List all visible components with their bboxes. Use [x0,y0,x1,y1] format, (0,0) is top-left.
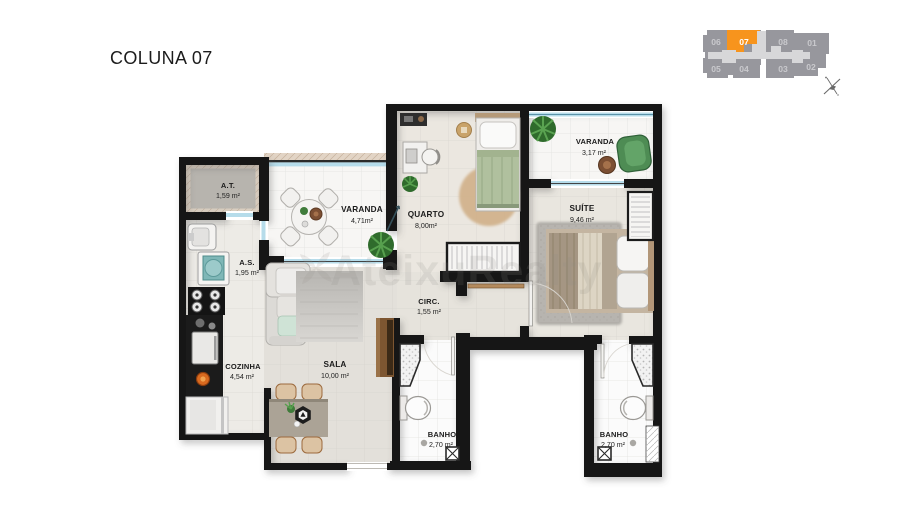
svg-text:BANHO: BANHO [428,430,457,439]
svg-text:A.S.: A.S. [239,258,254,267]
svg-text:05: 05 [711,64,721,74]
svg-text:COLUNA 07: COLUNA 07 [110,48,213,68]
svg-text:10,00 m²: 10,00 m² [321,372,350,380]
svg-text:1,59 m²: 1,59 m² [216,192,241,200]
svg-text:01: 01 [807,38,817,48]
svg-text:8,00m²: 8,00m² [415,222,438,230]
svg-text:2,70 m²: 2,70 m² [429,441,454,449]
svg-text:SUÍTE: SUÍTE [569,203,594,213]
svg-text:VARANDA: VARANDA [576,137,615,146]
svg-text:4,71m²: 4,71m² [351,217,374,225]
svg-text:CIRC.: CIRC. [418,297,439,306]
svg-text:2,70 m²: 2,70 m² [601,441,626,449]
svg-text:1,55 m²: 1,55 m² [417,308,442,316]
svg-text:03: 03 [778,64,788,74]
svg-text:QUARTO: QUARTO [408,210,445,219]
svg-text:4,54 m²: 4,54 m² [230,373,255,381]
svg-text:1,95 m²: 1,95 m² [235,269,260,277]
svg-text:A.T.: A.T. [221,181,235,190]
svg-text:AteixuRealty: AteixuRealty [330,247,603,295]
svg-text:06: 06 [711,37,721,47]
svg-text:08: 08 [778,37,788,47]
svg-text:07: 07 [739,37,749,47]
svg-text:SALA: SALA [323,360,346,369]
svg-text:COZINHA: COZINHA [225,362,261,371]
svg-text:04: 04 [739,64,749,74]
svg-text:BANHO: BANHO [600,430,629,439]
svg-text:9,46 m²: 9,46 m² [570,216,595,224]
svg-text:02: 02 [806,62,816,72]
svg-text:VARANDA: VARANDA [341,205,383,214]
svg-text:3,17 m²: 3,17 m² [582,149,607,157]
